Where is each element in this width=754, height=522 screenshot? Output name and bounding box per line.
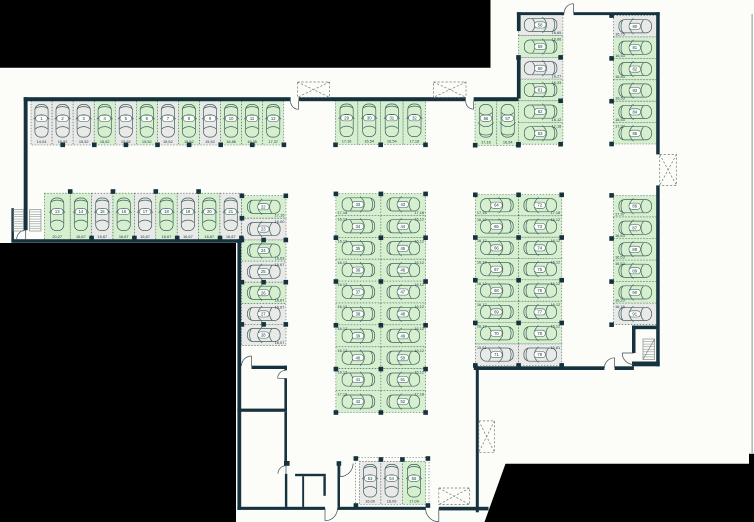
- svg-text:17,18: 17,18: [338, 392, 348, 397]
- svg-text:16,12: 16,12: [414, 304, 424, 309]
- svg-text:16: 16: [121, 209, 126, 214]
- svg-text:90: 90: [632, 290, 637, 295]
- svg-text:16,12: 16,12: [338, 304, 348, 309]
- svg-text:16,27: 16,27: [552, 74, 562, 79]
- svg-text:17,09: 17,09: [409, 498, 419, 503]
- svg-text:16,12: 16,12: [414, 326, 424, 331]
- svg-text:16,67: 16,67: [140, 234, 150, 239]
- svg-text:16,67: 16,67: [275, 304, 285, 309]
- svg-text:16,66: 16,66: [552, 37, 562, 42]
- svg-text:16,53: 16,53: [615, 117, 625, 122]
- svg-text:16,12: 16,12: [477, 260, 487, 265]
- svg-text:69: 69: [494, 310, 499, 315]
- svg-text:16,54: 16,54: [503, 140, 514, 145]
- svg-text:47: 47: [400, 290, 405, 295]
- svg-text:27: 27: [261, 311, 266, 316]
- svg-text:16,67: 16,67: [275, 262, 285, 267]
- svg-text:16,12: 16,12: [550, 238, 560, 243]
- svg-text:16,12: 16,12: [550, 324, 560, 329]
- svg-text:72: 72: [537, 203, 542, 208]
- svg-text:15,81: 15,81: [550, 345, 560, 350]
- svg-text:56: 56: [484, 116, 489, 121]
- svg-text:17,18: 17,18: [477, 210, 487, 215]
- svg-text:86: 86: [632, 204, 637, 209]
- svg-text:16,33: 16,33: [552, 80, 562, 85]
- svg-text:30: 30: [367, 115, 372, 120]
- svg-text:75: 75: [537, 267, 542, 272]
- svg-text:17,16: 17,16: [275, 213, 285, 218]
- svg-text:68: 68: [494, 288, 499, 293]
- svg-text:19: 19: [186, 209, 191, 214]
- svg-text:15,52: 15,52: [205, 139, 215, 144]
- svg-text:17,18: 17,18: [414, 210, 424, 215]
- svg-text:16,53: 16,53: [615, 53, 625, 58]
- svg-text:16,12: 16,12: [477, 238, 487, 243]
- svg-text:71: 71: [494, 352, 499, 357]
- svg-text:16,65: 16,65: [552, 30, 562, 35]
- svg-text:83: 83: [632, 88, 637, 93]
- svg-text:16,12: 16,12: [338, 260, 348, 265]
- svg-text:45: 45: [400, 246, 405, 251]
- svg-text:74: 74: [537, 245, 542, 250]
- svg-text:17,16: 17,16: [410, 139, 420, 144]
- svg-text:60: 60: [538, 66, 543, 71]
- svg-text:15,52: 15,52: [163, 139, 173, 144]
- svg-text:29: 29: [344, 115, 349, 120]
- svg-text:44: 44: [400, 224, 405, 229]
- svg-text:10: 10: [229, 116, 234, 121]
- svg-text:54: 54: [389, 476, 394, 481]
- svg-text:13: 13: [55, 209, 60, 214]
- svg-text:34: 34: [356, 224, 361, 229]
- svg-text:16,12: 16,12: [414, 348, 424, 353]
- svg-text:67: 67: [494, 267, 499, 272]
- svg-text:16,87: 16,87: [226, 234, 236, 239]
- svg-text:24: 24: [261, 248, 266, 253]
- svg-text:16,67: 16,67: [275, 298, 285, 303]
- svg-text:15: 15: [100, 209, 105, 214]
- svg-text:16,12: 16,12: [477, 324, 487, 329]
- svg-text:16,12: 16,12: [477, 217, 487, 222]
- svg-text:62: 62: [538, 109, 543, 114]
- svg-text:16,67: 16,67: [162, 234, 172, 239]
- svg-text:16,67: 16,67: [119, 234, 129, 239]
- svg-text:40: 40: [356, 355, 361, 360]
- svg-text:17,16: 17,16: [342, 139, 352, 144]
- svg-text:22: 22: [261, 204, 266, 209]
- svg-text:16,53: 16,53: [615, 261, 625, 266]
- svg-text:16,12: 16,12: [338, 216, 348, 221]
- svg-text:16,53: 16,53: [615, 96, 625, 101]
- svg-text:20,27: 20,27: [52, 234, 62, 239]
- svg-text:41: 41: [356, 377, 361, 382]
- svg-text:17,18: 17,18: [338, 210, 348, 215]
- svg-text:16,12: 16,12: [550, 302, 560, 307]
- svg-text:16,12: 16,12: [338, 238, 348, 243]
- svg-text:53: 53: [368, 476, 373, 481]
- svg-text:15,81: 15,81: [477, 345, 487, 350]
- svg-text:16,12: 16,12: [550, 281, 560, 286]
- svg-text:16,67: 16,67: [76, 234, 86, 239]
- svg-text:76: 76: [537, 288, 542, 293]
- svg-text:33: 33: [356, 202, 361, 207]
- svg-text:16,86: 16,86: [226, 139, 236, 144]
- svg-text:73: 73: [537, 224, 542, 229]
- svg-text:16,12: 16,12: [338, 326, 348, 331]
- svg-text:16,12: 16,12: [550, 217, 560, 222]
- svg-text:49: 49: [400, 333, 405, 338]
- svg-text:12: 12: [271, 116, 276, 121]
- svg-text:63: 63: [538, 131, 543, 136]
- svg-text:16,75: 16,75: [615, 31, 625, 36]
- svg-text:43: 43: [400, 202, 405, 207]
- svg-text:16,12: 16,12: [550, 260, 560, 265]
- svg-text:84: 84: [632, 109, 637, 114]
- svg-text:65: 65: [494, 224, 499, 229]
- svg-text:16,54: 16,54: [387, 139, 398, 144]
- svg-text:66: 66: [494, 245, 499, 250]
- svg-text:88: 88: [632, 247, 637, 252]
- svg-text:26: 26: [261, 290, 266, 295]
- svg-text:17: 17: [143, 209, 148, 214]
- svg-text:16,12: 16,12: [552, 117, 562, 122]
- svg-text:61: 61: [538, 88, 543, 93]
- svg-text:16,53: 16,53: [615, 254, 625, 259]
- svg-text:38: 38: [356, 312, 361, 317]
- svg-text:15,52: 15,52: [79, 139, 89, 144]
- svg-text:51: 51: [400, 377, 405, 382]
- svg-text:20: 20: [207, 209, 212, 214]
- svg-text:89: 89: [632, 268, 637, 273]
- svg-text:81: 81: [632, 45, 637, 50]
- svg-text:16,12: 16,12: [414, 216, 424, 221]
- svg-text:57: 57: [505, 116, 510, 121]
- svg-text:18: 18: [164, 209, 169, 214]
- svg-text:52: 52: [400, 399, 405, 404]
- svg-text:37: 37: [356, 290, 361, 295]
- svg-text:91: 91: [632, 312, 637, 317]
- svg-text:87: 87: [632, 225, 637, 230]
- svg-text:17,16: 17,16: [481, 140, 491, 145]
- svg-text:11: 11: [250, 116, 255, 121]
- svg-text:17,37: 17,37: [615, 211, 625, 216]
- svg-text:31: 31: [389, 115, 394, 120]
- svg-text:16,12: 16,12: [338, 370, 348, 375]
- svg-text:14: 14: [79, 209, 84, 214]
- svg-text:28: 28: [261, 333, 266, 338]
- svg-text:16,18: 16,18: [615, 304, 625, 309]
- svg-text:16,12: 16,12: [414, 370, 424, 375]
- svg-text:16,09: 16,09: [365, 498, 375, 503]
- svg-text:16,09: 16,09: [387, 498, 397, 503]
- svg-text:35: 35: [356, 246, 361, 251]
- svg-text:25: 25: [261, 269, 266, 274]
- svg-text:16,00: 16,00: [275, 219, 286, 224]
- svg-text:16,12: 16,12: [477, 281, 487, 286]
- svg-text:77: 77: [537, 310, 542, 315]
- svg-text:16,12: 16,12: [338, 282, 348, 287]
- svg-text:59: 59: [538, 44, 543, 49]
- svg-text:39: 39: [356, 333, 361, 338]
- svg-text:16,12: 16,12: [414, 282, 424, 287]
- svg-text:79: 79: [537, 352, 542, 357]
- svg-text:50: 50: [400, 355, 405, 360]
- svg-text:15,52: 15,52: [100, 139, 110, 144]
- svg-text:36: 36: [356, 268, 361, 273]
- svg-text:16,53: 16,53: [615, 233, 625, 238]
- svg-text:16,53: 16,53: [615, 74, 625, 79]
- svg-text:16,67: 16,67: [97, 234, 107, 239]
- svg-text:85: 85: [632, 131, 637, 136]
- svg-text:82: 82: [632, 67, 637, 72]
- svg-text:16,12: 16,12: [338, 348, 348, 353]
- svg-text:15,52: 15,52: [142, 139, 152, 144]
- svg-text:21: 21: [228, 209, 233, 214]
- svg-text:16,12: 16,12: [477, 302, 487, 307]
- svg-text:48: 48: [400, 312, 405, 317]
- svg-text:46: 46: [400, 268, 405, 273]
- svg-text:16,54: 16,54: [364, 139, 375, 144]
- svg-text:58: 58: [538, 22, 543, 27]
- svg-text:16,12: 16,12: [414, 238, 424, 243]
- svg-text:17,18: 17,18: [414, 392, 424, 397]
- svg-text:16,07: 16,07: [275, 340, 285, 345]
- svg-text:16,67: 16,67: [183, 234, 193, 239]
- svg-text:70: 70: [494, 331, 499, 336]
- svg-text:17,37: 17,37: [268, 139, 278, 144]
- svg-text:17,18: 17,18: [550, 210, 560, 215]
- svg-text:32: 32: [412, 115, 417, 120]
- svg-text:78: 78: [537, 331, 542, 336]
- svg-text:42: 42: [356, 399, 361, 404]
- svg-text:14,04: 14,04: [37, 139, 48, 144]
- svg-text:16,67: 16,67: [204, 234, 214, 239]
- svg-text:80: 80: [632, 24, 637, 29]
- svg-text:17,37: 17,37: [615, 124, 625, 129]
- svg-text:55: 55: [412, 476, 417, 481]
- svg-text:64: 64: [494, 203, 499, 208]
- svg-text:16,20: 16,20: [615, 298, 626, 303]
- svg-text:16,63: 16,63: [275, 256, 285, 261]
- svg-text:17,18: 17,18: [552, 124, 562, 129]
- svg-text:23: 23: [261, 227, 266, 232]
- svg-text:16,12: 16,12: [414, 260, 424, 265]
